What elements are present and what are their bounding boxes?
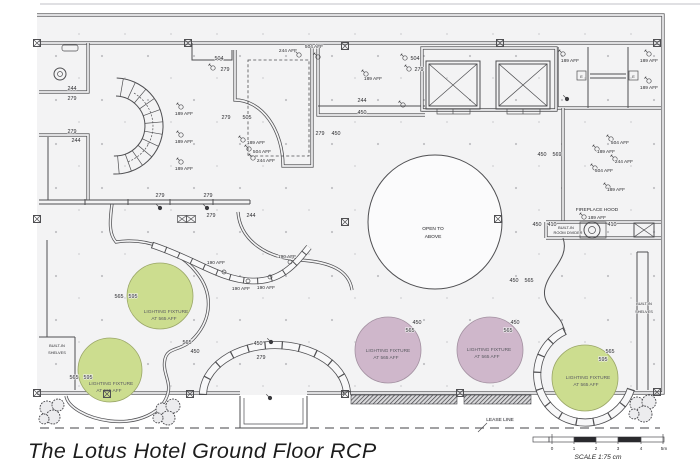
fixture-label: LIGHTING FIXTURE [366, 348, 411, 354]
dim-label: 595 [129, 294, 138, 300]
atrium-fill [368, 155, 502, 289]
lighting-fixture-purple-2: LIGHTING FIXTURE AT 565 AFF [457, 317, 523, 383]
drawing-title: The Lotus Hotel Ground Floor RCP [28, 439, 377, 463]
e-box-label: E [632, 74, 635, 79]
ceiling-grid-dots [37, 15, 663, 395]
dim-label: 279 [68, 96, 77, 102]
scale-tick: 1 [573, 446, 576, 451]
e-box-label: E [580, 74, 583, 79]
dim-label: 565 [183, 340, 192, 346]
dim-label: 595 [84, 375, 93, 381]
planting-strips [351, 395, 531, 404]
dim-label: 504 [215, 56, 224, 62]
dim-label: 450 [533, 222, 542, 228]
scale-tick: 4 [640, 446, 643, 451]
fixture-label: AT 565 AFF [151, 316, 176, 322]
lease-line-label: LEASE LINE [486, 417, 513, 423]
aff-label: 189 AFF [640, 58, 658, 64]
builtin-shelves-left-1: BUILT-IN [49, 343, 65, 348]
fireplace-label: FIREPLACE HOOD [576, 207, 619, 213]
aff-label: 190 AFF [232, 286, 250, 292]
rcp-drawing: OPEN TO ABOVE LIGHTING FIXTURE AT 565 AF… [0, 0, 700, 474]
dim-label: 450 [358, 110, 367, 116]
aff-label: 504 AFF [595, 168, 613, 174]
dim-label: 279 [316, 131, 325, 137]
aff-label: 189 AFF [175, 166, 193, 172]
aff-label: 244 AFF [615, 159, 633, 165]
scale-caption: SCALE 1:75 cm [575, 454, 622, 461]
aff-label: 189 AFF [597, 149, 615, 155]
aff-label: 189 AFF [175, 139, 193, 145]
dim-label: 450 [510, 278, 519, 284]
aff-label: 189 AFF [561, 58, 579, 64]
fixture-label: LIGHTING FIXTURE [566, 375, 611, 381]
fixture-label: AT 565 AFF [474, 354, 499, 360]
dim-label: 279 [222, 115, 231, 121]
dim-label: 279 [204, 193, 213, 199]
lighting-fixture-purple-1: LIGHTING FIXTURE AT 565 AFF [355, 317, 421, 383]
dim-label: 565 [504, 328, 513, 334]
dim-label: 569 [553, 152, 562, 158]
builtin-shelves-right-2: SHELVES [635, 309, 653, 314]
dim-label: 504 [411, 56, 420, 62]
dim-label: 244 [68, 86, 77, 92]
aff-label: 504 AFF [253, 149, 271, 155]
dim-label: 244 [247, 213, 256, 219]
aff-label: 189 AFF [588, 215, 606, 221]
dim-label: 244 [358, 98, 367, 104]
dim-label: 410 [548, 222, 557, 228]
aff-label: 189 AFF [607, 187, 625, 193]
dim-label: 244 [72, 138, 81, 144]
aff-label: 189 AFF [247, 140, 265, 146]
dim-label: 565 [606, 349, 615, 355]
dim-label: 279 [221, 67, 230, 73]
scale-tick: 0 [551, 446, 554, 451]
atrium-label-1: OPEN TO [422, 226, 444, 232]
aff-label: 504 AFF [611, 140, 629, 146]
dim-label: 565 [70, 375, 79, 381]
scale-tick: 2 [595, 446, 598, 451]
fixture-label: LIGHTING FIXTURE [467, 347, 512, 353]
aff-label: 189 AFF [175, 111, 193, 117]
dim-label: 450 [413, 320, 422, 326]
divider-label-2: ROOM DIVIDER [554, 230, 583, 235]
builtin-shelves-right-1: BUILT-IN [636, 301, 652, 306]
dim-label: 565 [525, 278, 534, 284]
dim-label: 410 [608, 222, 617, 228]
aff-label: 244 AFF [257, 158, 275, 164]
dim-label: 279 [68, 129, 77, 135]
dim-label: 565 [115, 294, 124, 300]
fixture-label: AT 565 AFF [373, 355, 398, 361]
scale-tick: 5m [661, 446, 668, 451]
builtin-shelves-left-2: SHELVES [48, 350, 66, 355]
atrium-label-2: ABOVE [425, 234, 442, 240]
dim-label: 450 [191, 349, 200, 355]
fixture-label: AT 565 AFF [573, 382, 598, 388]
aff-label: 504 AFF [305, 44, 323, 50]
dim-label: 279 [207, 213, 216, 219]
aff-label: 189 AFF [364, 76, 382, 82]
fixture-label: LIGHTING FIXTURE [144, 309, 189, 315]
dim-label: 450 [538, 152, 547, 158]
scale-tick: 3 [617, 446, 620, 451]
fixture-label: LIGHTING FIXTURE [89, 381, 134, 387]
dim-label: 450 [511, 320, 520, 326]
dim-label: 565 [406, 328, 415, 334]
aff-label: 190 AFF [207, 260, 225, 266]
dim-label: 595 [599, 357, 608, 363]
aff-label: 190 AFF [257, 285, 275, 291]
aff-label: 190 AFF [278, 254, 296, 260]
dim-label: 450 [332, 131, 341, 137]
dim-label: 450 [254, 341, 263, 347]
aff-label: 244 AFF [279, 48, 297, 54]
dim-label: 279 [415, 67, 424, 73]
aff-label: 189 AFF [640, 85, 658, 91]
dim-label: 279 [257, 355, 266, 361]
dim-label: 505 [243, 115, 252, 121]
dim-label: 279 [156, 193, 165, 199]
